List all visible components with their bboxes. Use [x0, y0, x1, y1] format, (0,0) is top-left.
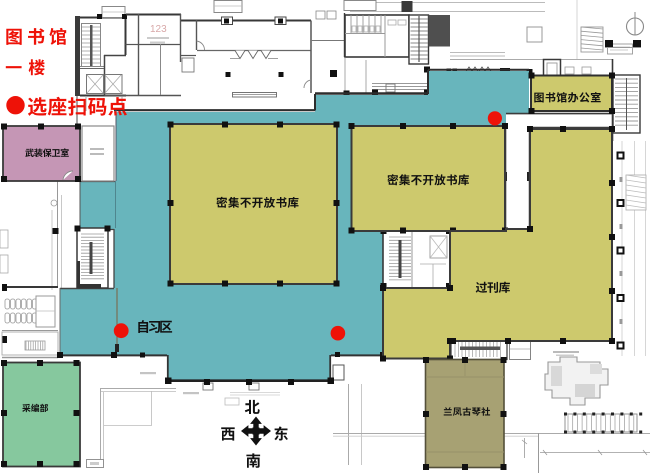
svg-text:123: 123	[150, 24, 167, 35]
